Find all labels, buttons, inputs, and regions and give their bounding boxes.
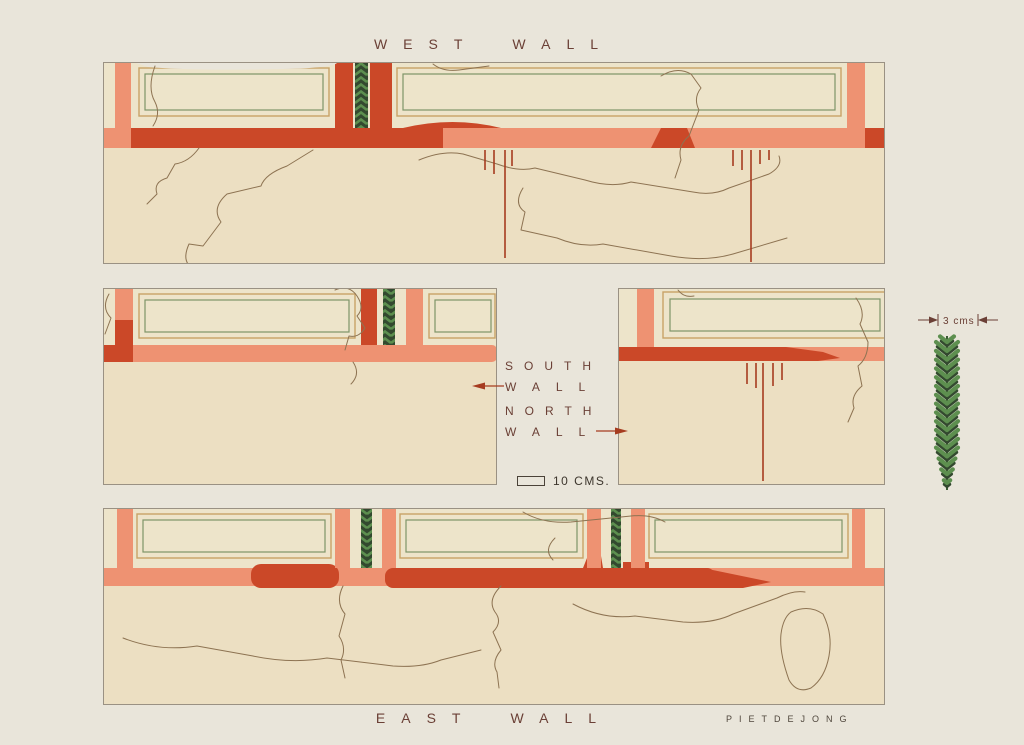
foliate-band-detail [923, 330, 971, 498]
east-frieze-zone [103, 508, 885, 568]
north-frieze-bars [637, 288, 654, 347]
north-wall-label-line2: WALL [505, 422, 605, 442]
scale-bar-icon [517, 476, 545, 486]
scale-label: 10 CMS. [553, 474, 610, 488]
south-wall-panel [103, 288, 497, 485]
north-wall-label-line1: NORTH [505, 401, 605, 421]
frond-leaves [936, 336, 958, 486]
west-wall-title: WEST WALL [103, 36, 885, 52]
west-wall-title-word2: WALL [512, 36, 614, 52]
west-wall-title-word1: WEST [374, 36, 478, 52]
south-wall-arrow-left [472, 381, 504, 391]
south-wall-label-line2: WALL [505, 377, 605, 397]
west-frieze-zone [103, 62, 885, 128]
north-wall-arrow-right [596, 426, 628, 436]
artist-signature: PIETDEJONG [726, 714, 854, 724]
north-wall-panel [618, 288, 885, 485]
south-wall-label-line1: SOUTH [505, 356, 605, 376]
north-horizontal-band [618, 347, 885, 361]
east-wall-title-word1: EAST [376, 710, 477, 726]
detail-scale-label: 3 cms [943, 316, 975, 327]
east-foliate-strip-1 [361, 508, 372, 568]
south-foliate-strip [383, 288, 395, 345]
west-wall-panel [103, 62, 885, 264]
detail-measure: 3 cms [918, 311, 998, 329]
south-frieze-zone [103, 288, 497, 345]
east-wall-panel [103, 508, 885, 705]
west-foliate-strip [355, 62, 368, 128]
east-wall-title-word2: WALL [510, 710, 612, 726]
scale-legend: 10 CMS. [517, 474, 610, 488]
